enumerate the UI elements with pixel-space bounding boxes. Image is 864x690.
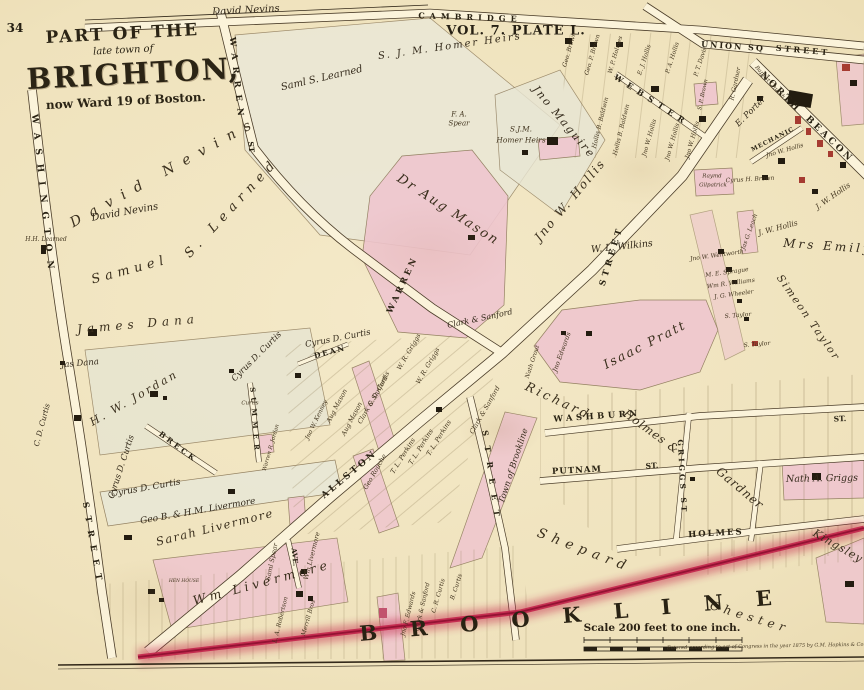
map-label-c-d-curtis: C. D. Curtis	[367, 371, 391, 408]
map-label-scale-200-feet-to-one-inch: Scale 200 feet to one inch.	[584, 623, 741, 634]
map-label-p-a-hollis: P. A. Hollis	[665, 42, 681, 75]
map-label-shepard: Shepard	[535, 527, 633, 575]
map-label-kingsley: Kingsley	[811, 527, 864, 564]
map-label-samuel: Samuel	[90, 253, 170, 286]
map-label-s-taylor: S. Taylor	[743, 341, 770, 349]
map-label-b-curtis: B. Curtis	[450, 573, 464, 601]
map-label-jno-maguire: Jno Maguire	[531, 84, 598, 161]
map-label-c-d-curtis: C. D. Curtis	[33, 403, 52, 448]
map-label-s-taylor: S. Taylor	[724, 312, 751, 320]
map-label-baptist-church: Baptist Church	[753, 66, 785, 101]
map-label-saml-s-learned: Saml S. Learned	[280, 65, 364, 94]
map-label-street: STREET	[481, 430, 502, 527]
map-label-homer-heirs: Homer Heirs	[496, 136, 545, 144]
map-label-st: ST.	[834, 415, 847, 423]
map-label-street: STREET	[599, 225, 625, 288]
map-label-s-learned: S. Learned	[182, 156, 281, 261]
map-label-isaac-pratt: Isaac Pratt	[602, 319, 689, 372]
map-label-s-j-m: S.J.M.	[510, 125, 532, 133]
map-label-jno-w-hollis: Jno W. Hollis	[532, 157, 607, 243]
map-label-cambridge: CAMBRIDGE	[418, 11, 522, 23]
map-label-s-p-brown: S. P. Brown	[698, 79, 710, 111]
map-label-w-r-griggs: W. R. Griggs	[396, 333, 422, 372]
map-label-cyrus-h-brown: Cyrus H. Brown	[726, 176, 775, 185]
map-label-beacon: BEACON	[803, 115, 854, 165]
map-label-w-r-griggs: W. R. Griggs	[415, 347, 441, 386]
map-label-summer: SUMMER	[249, 387, 261, 455]
map-label-curtis: Curtis	[241, 401, 258, 407]
map-label-e-porter: E. Porter	[734, 95, 767, 128]
map-label-dr-aug-mason: Dr Aug Mason	[395, 172, 502, 248]
map-label-w-l-wilkins: W. L. Wilkins	[591, 239, 654, 255]
map-label-e-j-hollis: E. J. Hollis	[637, 44, 652, 76]
map-label-warren: WARREN	[386, 255, 420, 315]
map-label-james-dana: James Dana	[77, 313, 200, 336]
map-label-david-nevins: David Nevins	[212, 4, 280, 18]
map-label-clark-sanford: Clark & Sanford	[447, 308, 514, 330]
map-label-putnam: PUTNAM	[552, 465, 602, 476]
map-label-r-gardner: R. Gardner	[730, 67, 743, 101]
map-label-street: STREET	[80, 502, 103, 589]
map-label-jas-g-leach: Jas G. Leach	[741, 213, 760, 250]
map-label-jno-w-hollis: Jno W. Hollis	[642, 119, 658, 158]
map-label-c-r-curtis: C. R. Curtis	[431, 578, 446, 614]
map-label-j-w-hollis: J. W. Hollis	[757, 219, 798, 237]
map-label-street: STREET	[775, 44, 830, 57]
map-label-warren-r-jordan: Warren R. Jordan	[263, 424, 282, 472]
map-label-hollis-b-baldwin: Hollis B. Baldwin	[592, 97, 611, 149]
map-label-jno-w-hollis: Jno W. Hollis	[665, 123, 681, 162]
map-label-cyrus-d-curtis: Cyrus D. Curtis	[231, 331, 284, 384]
map-label-mrs-emily: Mrs Emily	[783, 237, 864, 255]
map-label-f-a: F. A.	[451, 112, 467, 119]
map-label-st: ST	[247, 141, 256, 153]
map-label-entered-according-to-act-of-congress-in-the-year-1875-by-g-m-hopkins-co: Entered according to act of Congress in …	[667, 643, 864, 651]
map-label-m-e-sprague: M. E. Sprague	[705, 267, 749, 279]
map-label-j-w-hollis: J. W. Hollis	[814, 181, 851, 210]
map-label-geo-p-brown: Geo. P. Brown	[584, 34, 601, 76]
map-label-jno-w-hollis: Jno W. Hollis	[766, 143, 805, 159]
map-label-holmes: HOLMES	[688, 528, 744, 539]
map-label-gardner: Gardner	[714, 465, 766, 511]
map-label-h-w-jordan: H. W. Jordan	[88, 368, 180, 427]
map-label-j-g-wheeler: J. G. Wheeler	[714, 289, 754, 300]
map-label-p-t-davis: P. T. Davis	[693, 47, 708, 78]
map-label-l-a-robertson: L. A. Robertson	[272, 596, 289, 643]
map-label-spear: Spear	[449, 121, 470, 128]
map-label-34: 34	[7, 22, 24, 34]
map-label-simeon-taylor: Simeon Taylor	[774, 273, 841, 363]
map-label-h-h-learned: H.H. Learned	[25, 237, 66, 243]
atlas-map-sheet: PART OF THE late town of BRIGHTON, now W…	[0, 0, 864, 690]
map-label-nath-grout: Nath Grout	[525, 345, 541, 380]
map-label-clark-sanford: Clark & Sanford	[469, 385, 502, 435]
map-label-jno-w-wentworth: Jno W. Wentworth	[690, 249, 744, 262]
map-label-st: ST.	[645, 462, 658, 470]
map-label-holmes: Holmes &	[621, 408, 681, 456]
map-label-warren: WARREN	[227, 37, 244, 123]
map-label-merrill-bros: Merrill Bros	[301, 599, 317, 636]
map-label-nath-a-griggs: Nath A. Griggs	[786, 474, 858, 485]
map-label-hollis-b-baldwin: Hollis B. Baldwin	[613, 104, 632, 156]
map-label-breck: BRECK	[157, 430, 198, 464]
map-label-town-of-brookline: Town of Brookline	[498, 428, 530, 505]
map-label-union-sq: UNION SQ	[701, 40, 765, 52]
map-label-washington: WASHINGTON	[29, 114, 55, 278]
map-label-w-p-holmes: W. P. Holmes	[608, 36, 624, 75]
map-label-aug-mason: Aug Mason	[325, 388, 348, 424]
map-label-gilpatrick: Gilpatrick	[699, 183, 727, 189]
map-label-raymd: Raymd	[702, 174, 721, 180]
map-labels-layer: 34VOL. 7. PLATE L.CAMBRIDGEDavid NevinsU…	[0, 0, 864, 690]
map-label-jas-dana: Jas Dana	[61, 358, 100, 370]
map-label-jno-edwards: Jno Edwards	[552, 331, 572, 372]
map-label-hen-house: HEN HOUSE	[169, 580, 199, 585]
